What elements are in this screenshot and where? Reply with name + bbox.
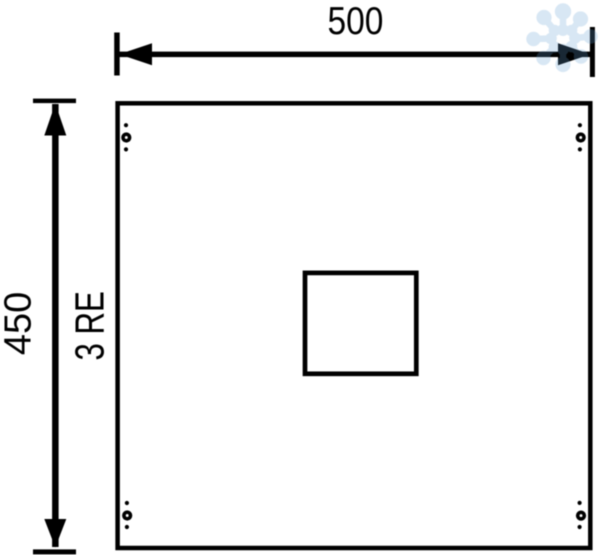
svg-text:500: 500 [327, 0, 383, 42]
svg-text:450: 450 [0, 292, 40, 355]
svg-text:3 RE: 3 RE [67, 291, 113, 360]
